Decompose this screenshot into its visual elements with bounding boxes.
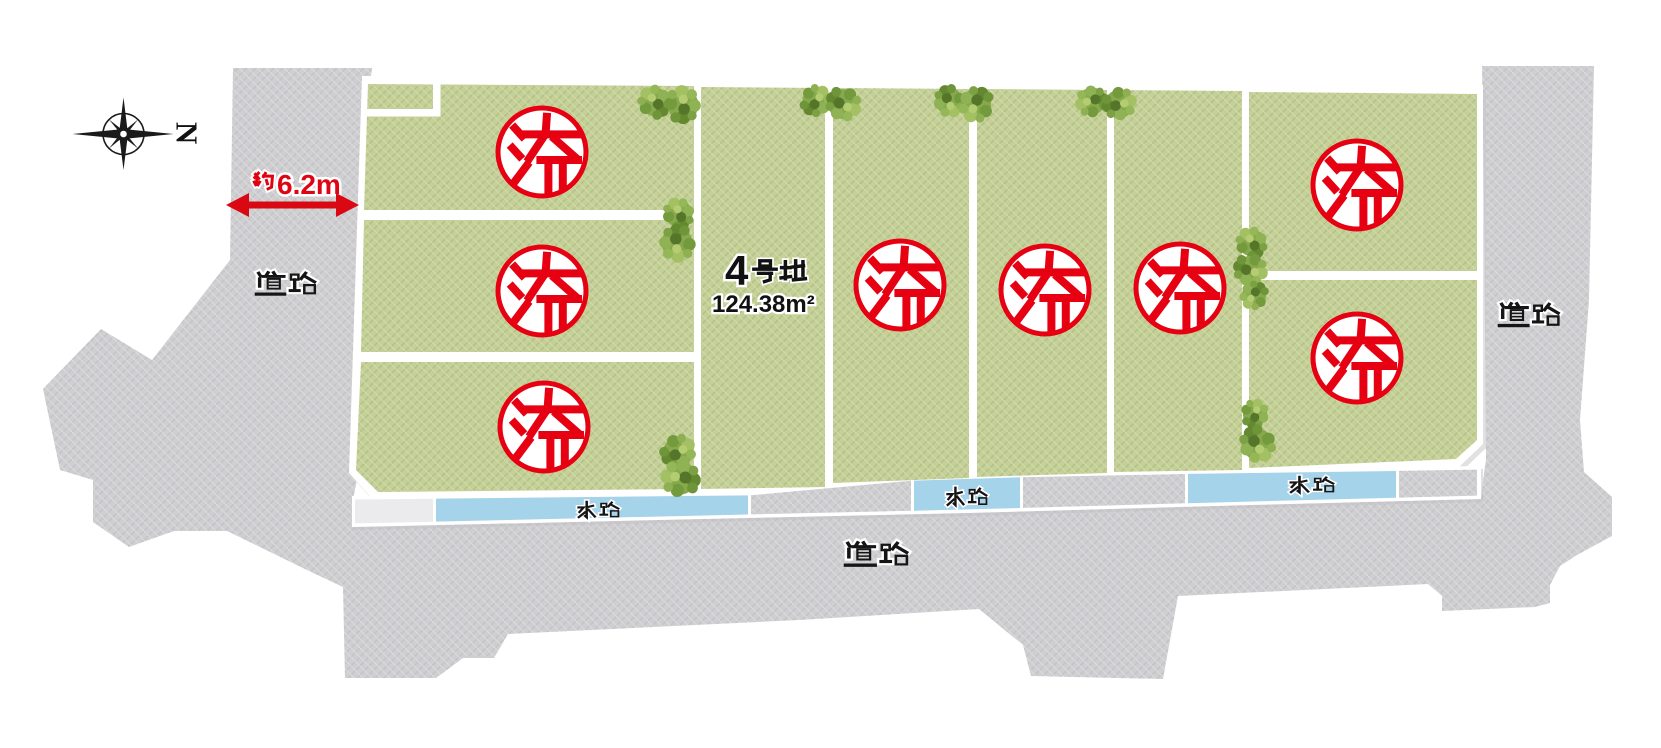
svg-text:N: N <box>170 122 205 144</box>
svg-text:124.38m²: 124.38m² <box>712 291 815 318</box>
svg-text:6.2m: 6.2m <box>277 169 341 200</box>
svg-text:4: 4 <box>725 247 749 294</box>
